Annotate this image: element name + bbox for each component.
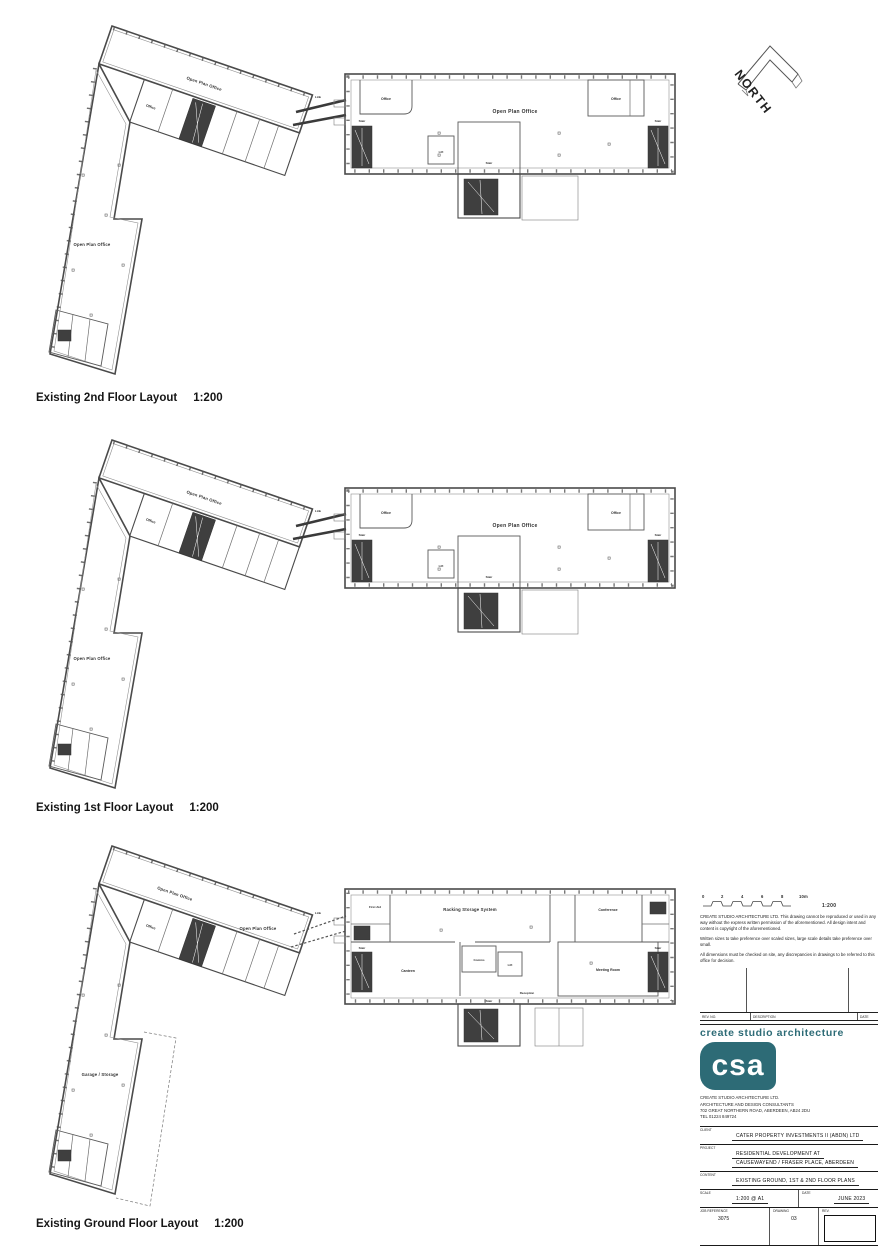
north-label: NORTH (732, 67, 775, 117)
room-label-racking-storage: Racking Storage System (443, 907, 497, 912)
brand-wordmark: create studio architecture (700, 1027, 878, 1039)
link-bridge: Link (293, 509, 346, 539)
revision-divider-1 (746, 968, 747, 1012)
caption-text: Existing Ground Floor Layout (36, 1218, 198, 1230)
field-content: CONTENT EXISTING GROUND, 1ST & 2ND FLOOR… (700, 1171, 878, 1189)
rev-label: REV. (822, 1209, 876, 1213)
room-label-stair-right: Stair (655, 946, 663, 950)
drawing-sheet: NORTH Open Plan Office Office (0, 0, 886, 1253)
room-label-office-left: Office (381, 511, 391, 515)
field-project: PROJECT RESIDENTIAL DEVELOPMENT AT CAUSE… (700, 1144, 878, 1171)
room-label-open-plan-bar: Open Plan Office (157, 885, 194, 902)
note-copyright: CREATE STUDIO ARCHITECTURE LTD. This dra… (700, 914, 878, 932)
link-label: Link (315, 509, 321, 513)
room-label-stair-left: Stair (359, 946, 367, 950)
note-written-sizes: Written sizes to take preference over sc… (700, 936, 878, 948)
field-client: CLIENT CATER PROPERTY INVESTMENTS II (AB… (700, 1126, 878, 1144)
room-label-open-plan-bar: Open Plan Office (186, 75, 223, 92)
revision-col-no: REV. NO. (700, 1013, 750, 1020)
link-bridge: Link (291, 911, 346, 947)
room-label-reception: Reception (520, 991, 535, 995)
room-label-conference: Conference (598, 908, 617, 912)
date-label: DATE (802, 1191, 878, 1195)
title-block: 0 2 4 6 8 10m 1:200 CREATE STUDIO ARCHIT… (700, 893, 878, 1246)
room-label-meeting-room: Meeting Room (596, 968, 620, 972)
revision-col-desc: DESCRIPTION (750, 1013, 857, 1020)
left-building: Open Plan Office Office Open Plan Office… (49, 846, 312, 1206)
practice-phone: TEL 01224 849724 (700, 1114, 878, 1120)
room-label-stair-left: Stair (359, 119, 367, 123)
project-value-2: CAUSEWAYEND / FRASER PLACE, ABERDEEN (732, 1160, 858, 1168)
csa-logo-text: csa (711, 1051, 764, 1081)
scale-label: SCALE (700, 1191, 798, 1195)
room-label-office: Office (145, 518, 156, 525)
field-scale-date: SCALE 1:200 @ A1 DATE JUNE 2023 (700, 1189, 878, 1207)
job-reference-label: JOB REFERENCE (700, 1209, 767, 1213)
room-label-open-plan: Open Plan Office (492, 109, 537, 115)
csa-logo: csa (700, 1042, 776, 1090)
left-building: Open Plan Office Office Open Plan Office (49, 26, 312, 374)
link-bridge: Link (293, 95, 346, 125)
room-label-office: Office (145, 104, 156, 111)
note-dimensions: All dimensions must be checked on site, … (700, 952, 878, 964)
room-label-canteen: Canteen (401, 969, 415, 973)
left-building: Open Plan Office Office Open Plan Office (49, 440, 312, 788)
scale-tick-8: 8 (781, 894, 784, 899)
plan-ground-floor: Open Plan Office Office Open Plan Office… (30, 834, 690, 1224)
revision-col-date: DATE (857, 1013, 878, 1020)
caption-scale: 1:200 (214, 1218, 243, 1230)
general-notes: CREATE STUDIO ARCHITECTURE LTD. This dra… (700, 914, 878, 964)
caption-scale: 1:200 (189, 802, 218, 814)
link-label: Link (315, 95, 321, 99)
room-label-open-plan-bar: Open Plan Office (186, 489, 223, 506)
revision-table-header: REV. NO. DESCRIPTION DATE (700, 1012, 878, 1020)
scale-tick-4: 4 (741, 894, 744, 899)
room-label-stair: Stair (486, 999, 494, 1003)
room-label-office-right: Office (611, 511, 621, 515)
scale-tick-0: 0 (702, 894, 705, 899)
field-drawing: DRAWING 03 (769, 1208, 818, 1245)
practice-details: CREATE STUDIO ARCHITECTURE LTD. ARCHITEC… (700, 1095, 878, 1121)
room-label-wing-open-plan: Open Plan Office (74, 656, 111, 661)
room-label-wing-open-plan: Open Plan Office (74, 242, 111, 247)
content-label: CONTENT (700, 1173, 878, 1177)
room-label-stair-right: Stair (655, 119, 663, 123)
room-label-lift: Lift (508, 963, 513, 967)
room-label-stair: Stair (486, 575, 494, 579)
scale-bar-ratio: 1:200 (822, 903, 836, 909)
north-arrow: NORTH (712, 32, 822, 137)
caption-text: Existing 2nd Floor Layout (36, 392, 177, 404)
job-reference-value: 3075 (718, 1216, 767, 1222)
room-label-lift: Lift (439, 564, 444, 568)
scale-value: 1:200 @ A1 (732, 1196, 768, 1204)
scale-bar: 0 2 4 6 8 10m 1:200 (700, 893, 878, 911)
right-building: Open Plan Office Office Office Lift Stai… (334, 74, 675, 220)
scale-tick-10m: 10m (799, 894, 808, 899)
drawing-value: 03 (791, 1216, 816, 1222)
drawing-label: DRAWING (773, 1209, 816, 1213)
field-job-row: JOB REFERENCE 3075 DRAWING 03 REV. (700, 1207, 878, 1246)
room-label-lift: Lift (439, 150, 444, 154)
room-label-office-left: Office (381, 97, 391, 101)
right-building: Open Plan Office Office Office Lift Stai… (334, 488, 675, 634)
right-building: First Aid Racking Storage System Confere… (334, 889, 675, 1046)
client-label: CLIENT (700, 1128, 878, 1132)
room-label-stair-left: Stair (359, 533, 367, 537)
caption-ground-floor: Existing Ground Floor Layout1:200 (36, 1218, 244, 1230)
room-label-stair: Stair (486, 161, 494, 165)
caption-first-floor: Existing 1st Floor Layout1:200 (36, 802, 219, 814)
field-job-reference: JOB REFERENCE 3075 (700, 1208, 769, 1245)
field-scale: SCALE 1:200 @ A1 (700, 1190, 798, 1207)
caption-scale: 1:200 (193, 392, 222, 404)
room-label-garage-storage: Garage / Storage (82, 1072, 119, 1077)
content-value: EXISTING GROUND, 1ST & 2ND FLOOR PLANS (732, 1178, 859, 1186)
room-label-office-right: Office (611, 97, 621, 101)
room-label-stair-right: Stair (655, 533, 663, 537)
caption-second-floor: Existing 2nd Floor Layout1:200 (36, 392, 223, 404)
scale-bar-zigzag (703, 902, 791, 907)
room-label-open-plan: Open Plan Office (492, 523, 537, 529)
revision-divider-2 (848, 968, 849, 1012)
room-label-comms: Comms (473, 958, 484, 962)
scale-tick-6: 6 (761, 894, 764, 899)
field-date: DATE JUNE 2023 (798, 1190, 878, 1207)
field-rev: REV. (818, 1208, 878, 1245)
room-label-office: Office (145, 924, 156, 931)
client-value: CATER PROPERTY INVESTMENTS II (ABDN) LTD (732, 1133, 863, 1141)
link-label: Link (315, 911, 321, 915)
room-label-first-aid: First Aid (369, 905, 381, 909)
caption-text: Existing 1st Floor Layout (36, 802, 173, 814)
project-label: PROJECT (700, 1146, 878, 1150)
plan-second-floor: Open Plan Office Office Open Plan Office… (30, 14, 690, 399)
project-value-1: RESIDENTIAL DEVELOPMENT AT (732, 1151, 824, 1159)
room-label-open-plan-mid: Open Plan Office (240, 926, 277, 931)
revision-table-body (700, 968, 878, 1012)
rev-value-box (824, 1215, 876, 1242)
plan-first-floor: Open Plan Office Office Open Plan Office… (30, 428, 690, 813)
divider-rule (700, 1020, 878, 1025)
scale-tick-2: 2 (721, 894, 724, 899)
date-value: JUNE 2023 (834, 1196, 869, 1204)
